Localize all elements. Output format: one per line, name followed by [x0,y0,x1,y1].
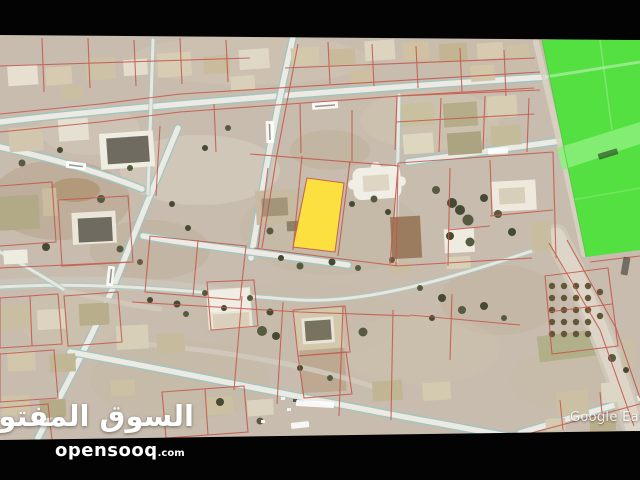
opensooq-wordmark: opensooq [55,440,158,461]
opensooq-watermark-latin: opensooq.com [55,440,185,461]
listing-map-image: Google Earth السوق المفتوح opensooq.com [0,0,640,480]
opensooq-watermark-arabic: السوق المفتوح [4,399,194,433]
letterbox-top [0,0,640,40]
opensooq-tld: .com [158,448,185,459]
map-credit: Google Earth [570,410,640,425]
